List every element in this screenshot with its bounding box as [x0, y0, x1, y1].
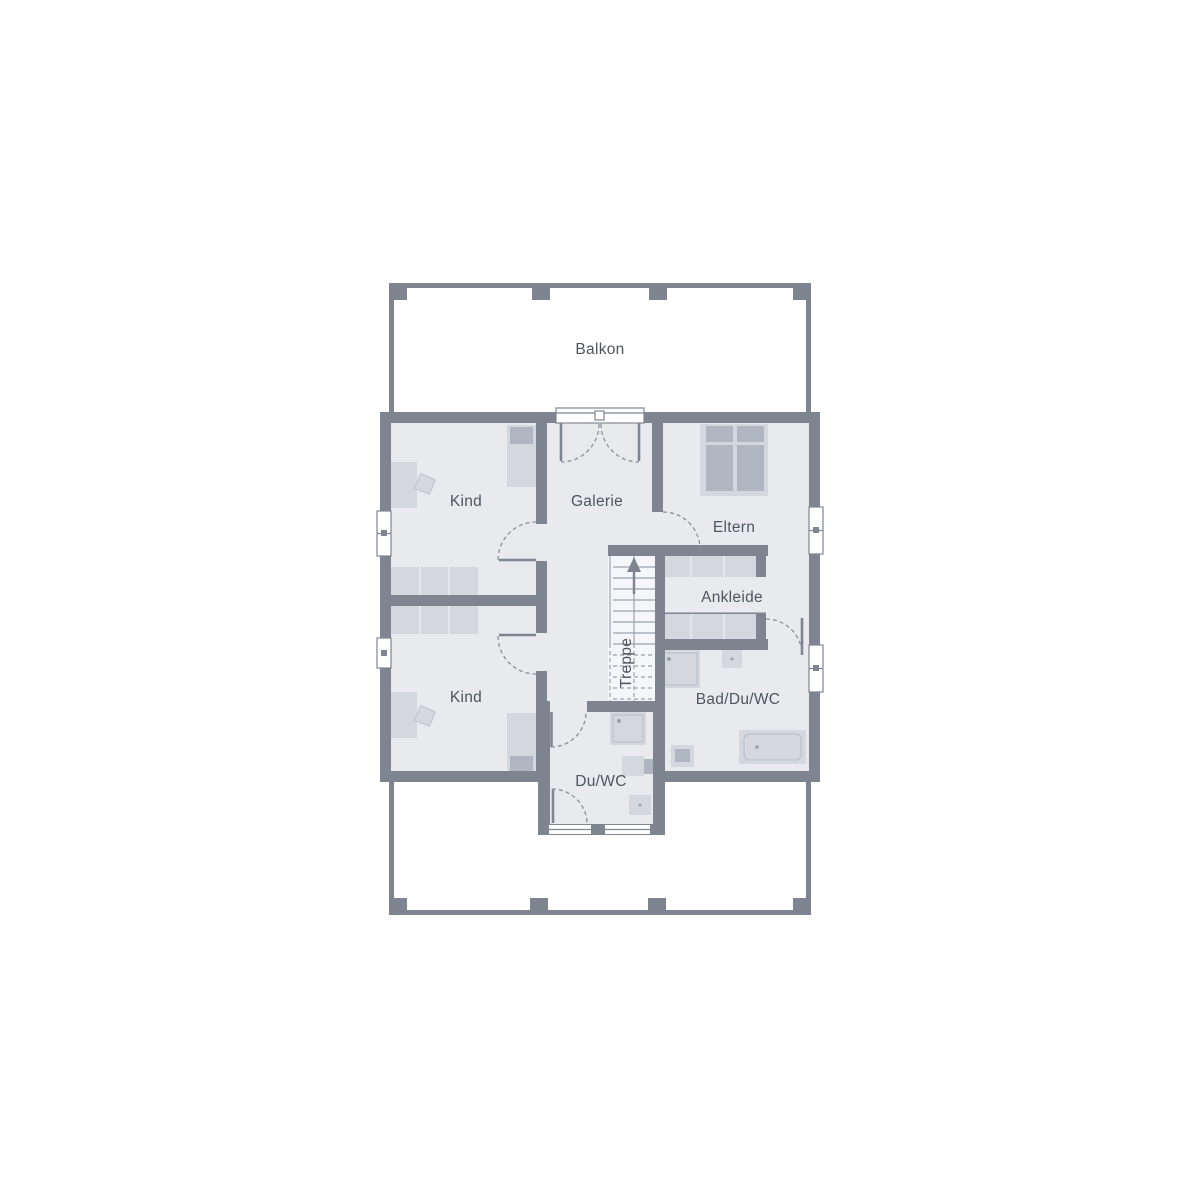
balcony-post — [389, 283, 407, 300]
floor-plan-drawing: Balkon Kind Galerie Eltern Ankleide Kind… — [0, 0, 1200, 1200]
room-label-kind-top: Kind — [450, 493, 482, 510]
interior-wall — [536, 423, 547, 524]
room-label-eltern: Eltern — [713, 519, 755, 536]
room-eltern-furniture — [700, 424, 768, 496]
room-label-du-wc: Du/WC — [575, 773, 626, 790]
bed-pillow — [737, 426, 764, 442]
bed-mattress — [706, 445, 733, 491]
room-label-treppe: Treppe — [618, 638, 635, 688]
duwc-wall-left — [538, 701, 550, 835]
exterior-wall-right — [809, 412, 820, 782]
balcony-rail — [389, 782, 394, 915]
wardrobe — [658, 556, 756, 577]
window-handle — [381, 530, 387, 536]
balcony-post — [793, 283, 811, 300]
shower — [660, 650, 700, 688]
shower — [610, 712, 646, 745]
wardrobe — [391, 606, 478, 634]
wardrobe — [391, 567, 478, 595]
room-label-balkon: Balkon — [575, 341, 624, 358]
wardrobe-end-panel — [756, 556, 766, 577]
balcony-post — [793, 898, 811, 915]
interior-wall — [652, 423, 663, 512]
toilet-seat — [675, 749, 690, 762]
window-handle — [813, 527, 819, 533]
interior-wall — [536, 561, 547, 633]
balcony-post — [530, 898, 548, 915]
balcony-post — [389, 898, 407, 915]
exterior-wall-left — [380, 412, 391, 782]
bed-pillow — [706, 426, 733, 442]
floor-plan: Balkon Kind Galerie Eltern Ankleide Kind… — [0, 0, 1200, 1200]
bathtub-drain — [755, 745, 759, 749]
sink-drain — [639, 804, 642, 807]
interior-wall — [391, 595, 536, 606]
balcony-rail — [389, 283, 811, 288]
balcony-rail — [389, 283, 394, 412]
wardrobe-end-panel — [756, 614, 766, 639]
balcony-rail — [806, 283, 811, 412]
door-handle — [595, 411, 604, 420]
bed-pillow — [510, 427, 533, 444]
room-label-kind-bottom: Kind — [450, 689, 482, 706]
bathtub — [739, 730, 806, 764]
window-handle — [813, 665, 819, 671]
room-label-galerie: Galerie — [571, 493, 623, 510]
shower-drain — [667, 657, 671, 661]
duwc-wall-right — [653, 712, 665, 835]
wardrobe — [658, 614, 756, 639]
interior-wall — [655, 639, 768, 650]
room-label-ankleide: Ankleide — [701, 589, 763, 606]
bed-mattress — [737, 445, 764, 491]
balcony-post — [532, 283, 550, 300]
balcony-post — [648, 898, 666, 915]
bed-pillow — [510, 756, 533, 773]
desk — [391, 692, 417, 738]
window-handle — [381, 650, 387, 656]
balcony-post — [649, 283, 667, 300]
exterior-wall-bottom — [380, 771, 538, 782]
exterior-wall-bottom — [665, 771, 820, 782]
interior-wall — [608, 545, 768, 556]
balcony-rail — [806, 782, 811, 915]
balcony-rail — [389, 910, 811, 915]
desk — [391, 462, 417, 508]
room-label-bad-du-wc: Bad/Du/WC — [696, 691, 781, 708]
shower-drain — [617, 719, 621, 723]
toilet-cistern — [644, 759, 653, 774]
interior-wall — [587, 701, 665, 712]
interior-wall — [655, 556, 665, 712]
sink-drain — [731, 658, 734, 661]
